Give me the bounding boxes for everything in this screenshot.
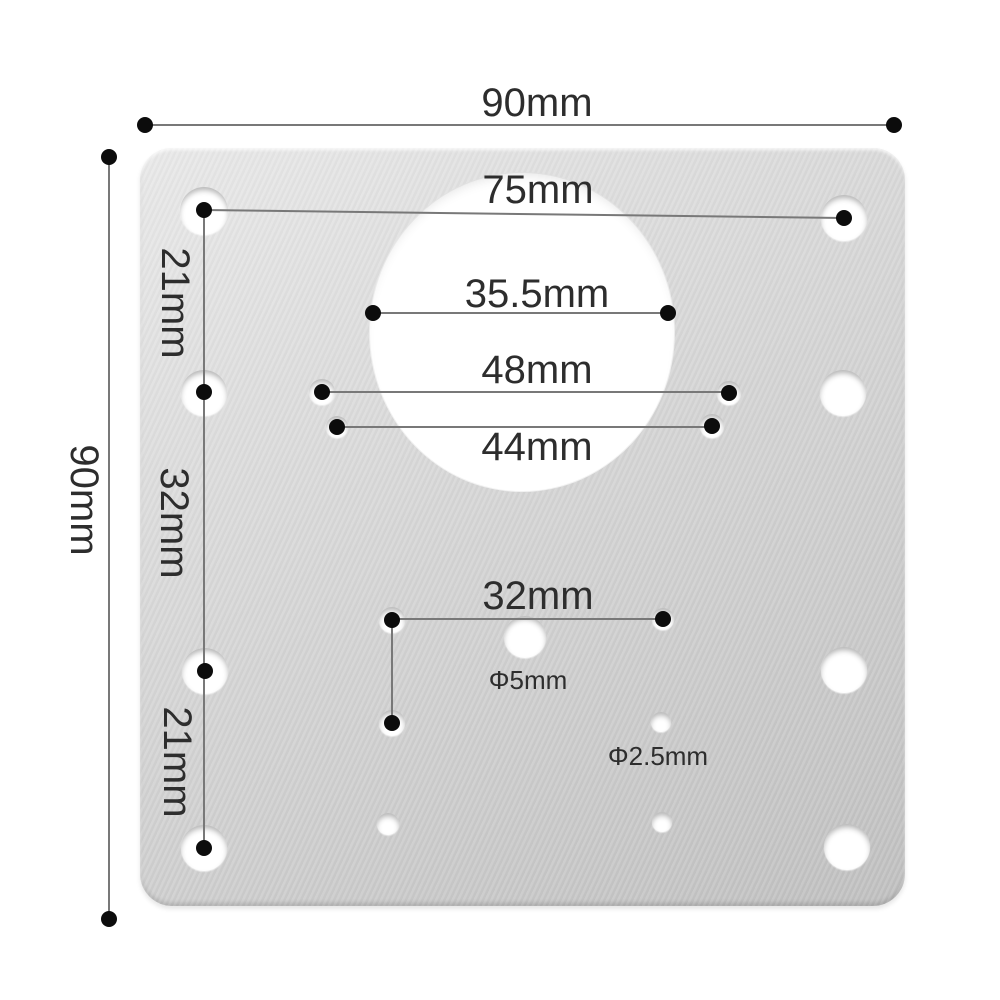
endpoint-dot <box>101 911 117 927</box>
label-overall-height: 90mm <box>64 444 104 555</box>
label-phi-5mm: Φ5mm <box>489 667 568 693</box>
dimension-line-32mm <box>392 618 663 620</box>
endpoint-dot <box>384 715 400 731</box>
endpoint-dot <box>196 384 212 400</box>
endpoint-dot <box>137 117 153 133</box>
connector-line-left-holes <box>203 210 205 848</box>
label-35-5mm: 35.5mm <box>465 274 610 314</box>
label-75mm: 75mm <box>482 170 593 210</box>
endpoint-dot <box>886 117 902 133</box>
dimension-line-overall-height <box>108 157 110 919</box>
label-overall-width: 90mm <box>481 83 592 123</box>
center-hole-5mm <box>504 616 546 658</box>
label-48mm: 48mm <box>481 350 592 390</box>
connector-line-32mm-column <box>391 620 393 723</box>
pilot-hole-2-5mm <box>651 712 671 732</box>
endpoint-dot <box>329 419 345 435</box>
endpoint-dot <box>197 663 213 679</box>
label-44mm: 44mm <box>481 427 592 467</box>
mount-hole-mid-right <box>820 370 866 416</box>
label-21mm-top: 21mm <box>155 247 195 358</box>
endpoint-dot <box>384 612 400 628</box>
label-32mm-horizontal: 32mm <box>482 576 593 616</box>
label-phi-2-5mm: Φ2.5mm <box>608 743 708 769</box>
endpoint-dot <box>196 202 212 218</box>
endpoint-dot <box>196 840 212 856</box>
endpoint-dot <box>314 384 330 400</box>
pilot-hole-bottom-left <box>377 813 399 835</box>
label-32mm-left: 32mm <box>154 467 194 578</box>
endpoint-dot <box>836 210 852 226</box>
endpoint-dot <box>660 305 676 321</box>
endpoint-dot <box>655 611 671 627</box>
endpoint-dot <box>101 149 117 165</box>
mount-hole-bottom-right <box>824 824 870 870</box>
endpoint-dot <box>365 305 381 321</box>
pilot-hole-bottom-right <box>652 812 672 832</box>
product-diagram: 90mm 90mm 75mm 35.5mm 48mm 44mm 32mm 21m… <box>0 0 1000 1000</box>
label-21mm-bottom: 21mm <box>157 706 197 817</box>
mount-hole-lower-right <box>821 647 867 693</box>
endpoint-dot <box>704 418 720 434</box>
endpoint-dot <box>721 385 737 401</box>
